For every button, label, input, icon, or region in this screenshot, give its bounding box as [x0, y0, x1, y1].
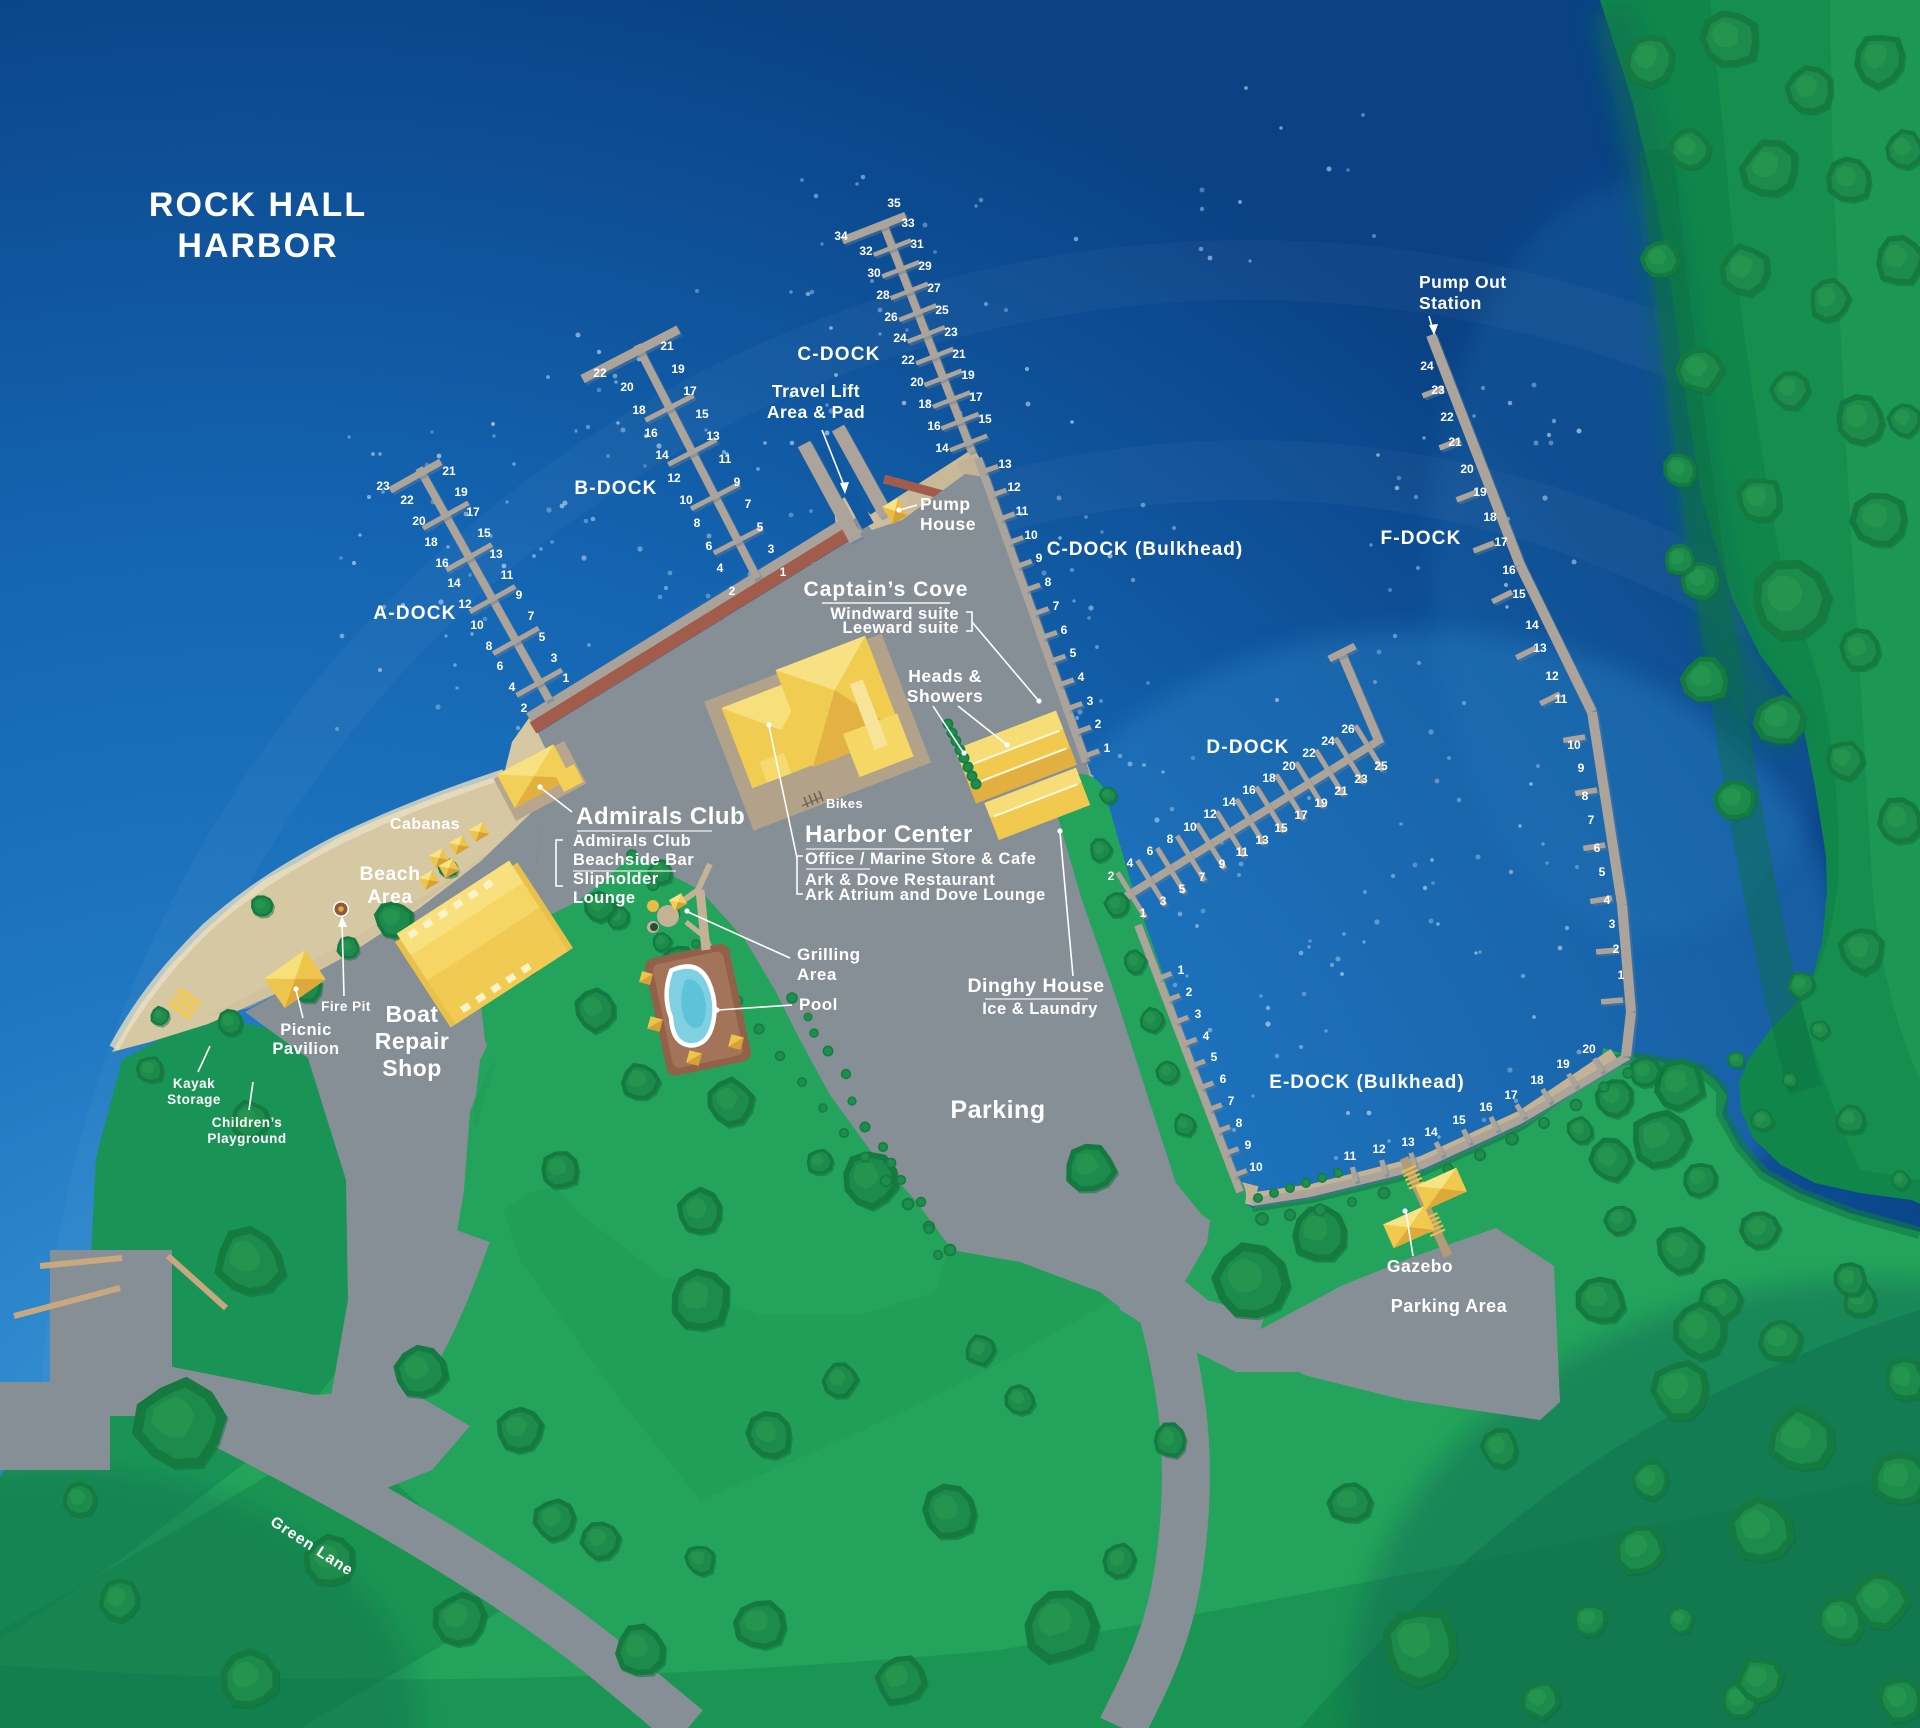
svg-text:10: 10	[679, 493, 693, 507]
svg-text:10: 10	[1024, 528, 1038, 542]
svg-text:House: House	[920, 514, 976, 534]
svg-text:16: 16	[1479, 1100, 1493, 1114]
svg-text:Captain’s Cove: Captain’s Cove	[804, 578, 969, 601]
svg-text:20: 20	[1582, 1042, 1596, 1056]
svg-text:11: 11	[719, 452, 732, 466]
svg-text:Parking Area: Parking Area	[1391, 1296, 1508, 1316]
svg-text:26: 26	[884, 310, 898, 324]
svg-text:12: 12	[1372, 1142, 1386, 1156]
svg-text:Picnic: Picnic	[280, 1021, 332, 1039]
svg-text:Pavilion: Pavilion	[272, 1040, 339, 1058]
svg-text:1: 1	[1178, 963, 1185, 977]
svg-text:16: 16	[1502, 563, 1516, 577]
svg-text:2: 2	[1108, 869, 1115, 883]
svg-text:9: 9	[1578, 761, 1585, 775]
svg-text:13: 13	[998, 457, 1012, 471]
svg-text:Area & Pad: Area & Pad	[767, 402, 865, 422]
svg-text:17: 17	[969, 390, 983, 404]
svg-text:13: 13	[706, 429, 720, 443]
svg-text:15: 15	[1452, 1113, 1466, 1127]
svg-text:3: 3	[1609, 917, 1616, 931]
svg-text:17: 17	[1494, 535, 1508, 549]
svg-text:16: 16	[644, 426, 658, 440]
svg-text:18: 18	[1530, 1073, 1544, 1087]
svg-text:8: 8	[486, 639, 493, 653]
svg-text:6: 6	[1147, 844, 1154, 858]
svg-text:Ark Atrium and Dove Lounge: Ark Atrium and Dove Lounge	[805, 886, 1046, 904]
svg-text:9: 9	[516, 588, 523, 602]
svg-text:1: 1	[1618, 968, 1625, 982]
svg-text:6: 6	[1220, 1072, 1227, 1086]
svg-text:Slipholder: Slipholder	[573, 870, 659, 888]
svg-text:4: 4	[509, 680, 516, 694]
svg-text:14: 14	[1424, 1125, 1438, 1139]
svg-text:1: 1	[1140, 906, 1147, 920]
svg-text:15: 15	[978, 412, 992, 426]
svg-text:3: 3	[1160, 894, 1167, 908]
svg-text:12: 12	[1545, 669, 1559, 683]
svg-text:11: 11	[1344, 1149, 1357, 1163]
svg-text:22: 22	[901, 353, 915, 367]
svg-text:29: 29	[918, 259, 932, 273]
svg-text:25: 25	[935, 303, 949, 317]
svg-text:3: 3	[1087, 694, 1094, 708]
svg-text:E-DOCK (Bulkhead): E-DOCK (Bulkhead)	[1269, 1072, 1464, 1093]
svg-text:12: 12	[1203, 807, 1217, 821]
svg-text:A-DOCK: A-DOCK	[373, 603, 456, 624]
svg-text:1: 1	[563, 671, 570, 685]
svg-text:10: 10	[1183, 820, 1197, 834]
svg-text:Leeward suite: Leeward suite	[842, 619, 959, 637]
svg-text:8: 8	[1582, 789, 1589, 803]
svg-text:16: 16	[435, 556, 449, 570]
svg-text:28: 28	[876, 288, 890, 302]
svg-text:30: 30	[867, 266, 881, 280]
svg-text:3: 3	[551, 651, 558, 665]
svg-text:25: 25	[1374, 759, 1388, 773]
svg-text:Cabanas: Cabanas	[390, 816, 460, 833]
svg-text:6: 6	[1594, 841, 1601, 855]
svg-text:23: 23	[1431, 383, 1445, 397]
svg-text:Admirals Club: Admirals Club	[576, 803, 745, 830]
svg-text:3: 3	[768, 542, 775, 556]
svg-text:Heads &: Heads &	[908, 666, 982, 686]
svg-text:21: 21	[1334, 784, 1348, 798]
svg-text:15: 15	[1512, 587, 1526, 601]
svg-text:24: 24	[1420, 359, 1434, 373]
svg-text:Dinghy House: Dinghy House	[967, 975, 1104, 997]
svg-text:6: 6	[706, 539, 713, 553]
svg-text:14: 14	[655, 448, 669, 462]
svg-text:7: 7	[1053, 599, 1060, 613]
svg-text:20: 20	[620, 380, 634, 394]
svg-text:18: 18	[918, 397, 932, 411]
svg-text:22: 22	[1440, 410, 1454, 424]
svg-text:D-DOCK: D-DOCK	[1206, 737, 1289, 758]
svg-text:C-DOCK (Bulkhead): C-DOCK (Bulkhead)	[1047, 539, 1243, 560]
svg-text:5: 5	[1211, 1050, 1218, 1064]
svg-text:22: 22	[400, 493, 414, 507]
svg-text:Ice & Laundry: Ice & Laundry	[982, 1000, 1098, 1018]
svg-text:18: 18	[424, 535, 438, 549]
svg-text:Kayak: Kayak	[173, 1076, 215, 1091]
svg-text:Pool: Pool	[799, 995, 838, 1014]
svg-text:Travel Lift: Travel Lift	[772, 381, 860, 401]
svg-text:8: 8	[1045, 575, 1052, 589]
svg-text:7: 7	[528, 609, 535, 623]
svg-text:Pump: Pump	[920, 494, 971, 514]
svg-text:Gazebo: Gazebo	[1387, 1256, 1453, 1276]
svg-text:Boat: Boat	[385, 1001, 438, 1027]
svg-text:14: 14	[1222, 795, 1236, 809]
svg-text:Harbor Center: Harbor Center	[805, 821, 973, 848]
svg-text:2: 2	[1613, 942, 1620, 956]
svg-text:19: 19	[671, 362, 685, 376]
svg-text:F-DOCK: F-DOCK	[1380, 528, 1461, 549]
svg-text:Repair: Repair	[375, 1028, 450, 1054]
svg-text:2: 2	[729, 584, 736, 598]
svg-text:Pump Out: Pump Out	[1419, 272, 1507, 292]
svg-text:16: 16	[1242, 783, 1256, 797]
svg-text:Area: Area	[797, 965, 837, 984]
svg-text:Station: Station	[1419, 293, 1482, 313]
svg-text:21: 21	[442, 464, 456, 478]
svg-text:14: 14	[447, 576, 461, 590]
svg-text:5: 5	[757, 520, 764, 534]
svg-text:22: 22	[593, 366, 607, 380]
svg-text:Storage: Storage	[167, 1092, 221, 1107]
svg-text:18: 18	[1262, 771, 1276, 785]
svg-text:20: 20	[1282, 759, 1296, 773]
svg-text:18: 18	[1483, 510, 1497, 524]
svg-text:10: 10	[470, 618, 484, 632]
svg-text:1: 1	[780, 565, 787, 579]
svg-text:15: 15	[695, 407, 709, 421]
svg-text:4: 4	[717, 561, 724, 575]
svg-text:11: 11	[501, 568, 514, 582]
svg-text:33: 33	[901, 216, 915, 230]
svg-text:7: 7	[1228, 1094, 1235, 1108]
svg-text:14: 14	[935, 441, 949, 455]
svg-text:23: 23	[1354, 772, 1368, 786]
svg-text:12: 12	[458, 597, 472, 611]
svg-text:10: 10	[1567, 738, 1581, 752]
svg-text:Area: Area	[367, 886, 412, 908]
svg-text:23: 23	[376, 479, 390, 493]
svg-text:17: 17	[683, 384, 697, 398]
svg-text:Grilling: Grilling	[797, 945, 861, 964]
svg-text:4: 4	[1078, 670, 1085, 684]
svg-text:Lounge: Lounge	[573, 889, 636, 907]
svg-text:7: 7	[1199, 870, 1206, 884]
svg-text:2: 2	[521, 701, 528, 715]
svg-text:17: 17	[1294, 808, 1308, 822]
svg-text:7: 7	[745, 497, 752, 511]
svg-text:19: 19	[1473, 485, 1487, 499]
svg-text:8: 8	[694, 516, 701, 530]
svg-text:13: 13	[1401, 1135, 1415, 1149]
svg-text:11: 11	[1236, 845, 1249, 859]
svg-text:Beachside Bar: Beachside Bar	[573, 851, 694, 869]
svg-text:9: 9	[1245, 1138, 1252, 1152]
svg-text:19: 19	[961, 368, 975, 382]
svg-text:14: 14	[1525, 618, 1539, 632]
svg-text:6: 6	[1061, 623, 1068, 637]
svg-text:16: 16	[927, 419, 941, 433]
svg-text:24: 24	[1321, 734, 1335, 748]
svg-text:5: 5	[1179, 882, 1186, 896]
svg-text:1: 1	[1104, 741, 1111, 755]
svg-text:Parking: Parking	[950, 1096, 1045, 1124]
svg-text:23: 23	[944, 325, 958, 339]
svg-text:31: 31	[910, 237, 924, 251]
svg-text:15: 15	[477, 526, 491, 540]
svg-text:9: 9	[734, 475, 741, 489]
svg-text:24: 24	[893, 331, 907, 345]
svg-text:6: 6	[497, 659, 504, 673]
svg-text:17: 17	[466, 505, 480, 519]
svg-text:35: 35	[887, 196, 901, 210]
svg-text:Admirals Club: Admirals Club	[573, 832, 691, 850]
svg-text:22: 22	[1302, 746, 1316, 760]
svg-text:4: 4	[1127, 856, 1134, 870]
svg-text:12: 12	[667, 471, 681, 485]
svg-text:17: 17	[1504, 1088, 1518, 1102]
svg-text:10: 10	[1249, 1160, 1263, 1174]
svg-text:20: 20	[412, 514, 426, 528]
svg-text:5: 5	[539, 630, 546, 644]
svg-text:13: 13	[489, 547, 503, 561]
svg-text:3: 3	[1195, 1007, 1202, 1021]
svg-text:21: 21	[1448, 435, 1462, 449]
svg-text:Fire Pit: Fire Pit	[321, 999, 371, 1014]
svg-text:2: 2	[1095, 717, 1102, 731]
svg-text:2: 2	[1186, 985, 1193, 999]
svg-text:32: 32	[859, 244, 873, 258]
svg-text:4: 4	[1604, 893, 1611, 907]
svg-text:12: 12	[1007, 480, 1021, 494]
svg-text:18: 18	[632, 403, 646, 417]
svg-text:26: 26	[1341, 722, 1355, 736]
svg-text:11: 11	[1555, 692, 1568, 706]
svg-text:Shop: Shop	[382, 1055, 442, 1081]
svg-text:27: 27	[927, 281, 941, 295]
svg-text:19: 19	[1314, 796, 1328, 810]
svg-text:20: 20	[1460, 462, 1474, 476]
svg-text:4: 4	[1203, 1029, 1210, 1043]
svg-text:Children’s: Children’s	[212, 1115, 283, 1130]
svg-text:Bikes: Bikes	[826, 796, 863, 811]
svg-text:Beach: Beach	[359, 863, 420, 885]
svg-text:B-DOCK: B-DOCK	[574, 478, 657, 499]
svg-text:15: 15	[1274, 821, 1288, 835]
svg-text:13: 13	[1255, 833, 1269, 847]
svg-text:11: 11	[1016, 504, 1029, 518]
svg-text:Showers: Showers	[907, 686, 983, 706]
svg-text:13: 13	[1533, 641, 1547, 655]
svg-text:Office / Marine Store & Cafe: Office / Marine Store & Cafe	[805, 850, 1036, 868]
svg-text:19: 19	[1556, 1057, 1570, 1071]
svg-text:21: 21	[952, 347, 966, 361]
svg-text:20: 20	[910, 375, 924, 389]
svg-text:8: 8	[1167, 832, 1174, 846]
svg-text:HARBOR: HARBOR	[177, 227, 338, 265]
svg-text:5: 5	[1599, 865, 1606, 879]
svg-text:5: 5	[1070, 646, 1077, 660]
svg-text:7: 7	[1588, 813, 1595, 827]
svg-text:9: 9	[1036, 551, 1043, 565]
svg-text:21: 21	[660, 339, 674, 353]
svg-text:C-DOCK: C-DOCK	[797, 344, 880, 365]
svg-text:9: 9	[1219, 857, 1226, 871]
svg-text:19: 19	[454, 485, 468, 499]
svg-text:34: 34	[834, 229, 848, 243]
svg-text:Playground: Playground	[207, 1131, 286, 1146]
svg-text:8: 8	[1236, 1116, 1243, 1130]
svg-text:ROCK HALL: ROCK HALL	[149, 186, 367, 224]
